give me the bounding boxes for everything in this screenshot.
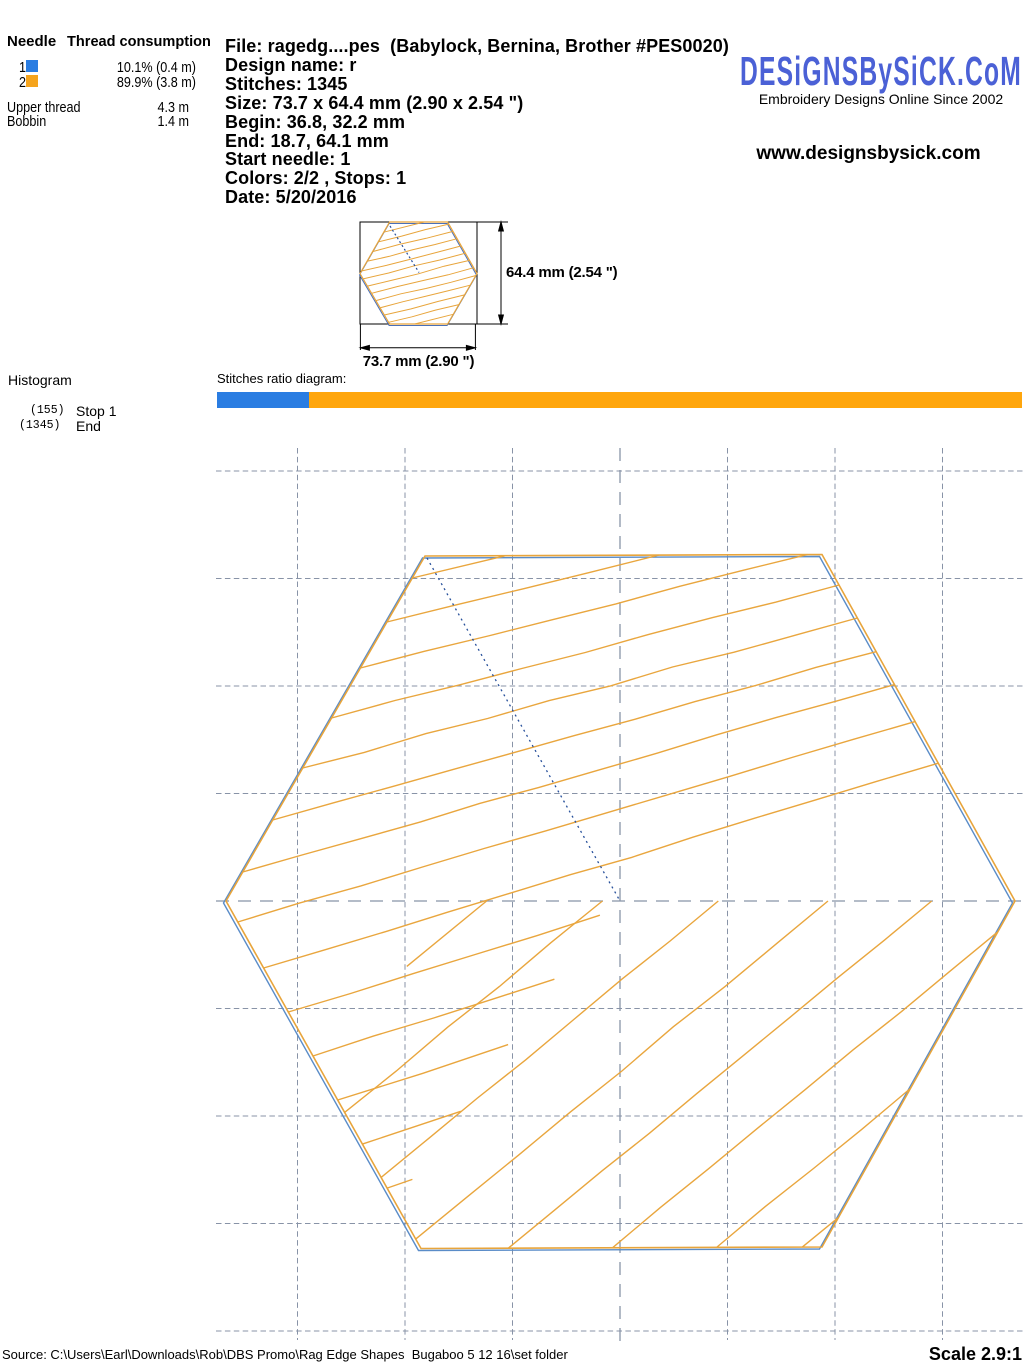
svg-text:DESiGNSBySiCK.CoM: DESiGNSBySiCK.CoM [740,48,1022,94]
